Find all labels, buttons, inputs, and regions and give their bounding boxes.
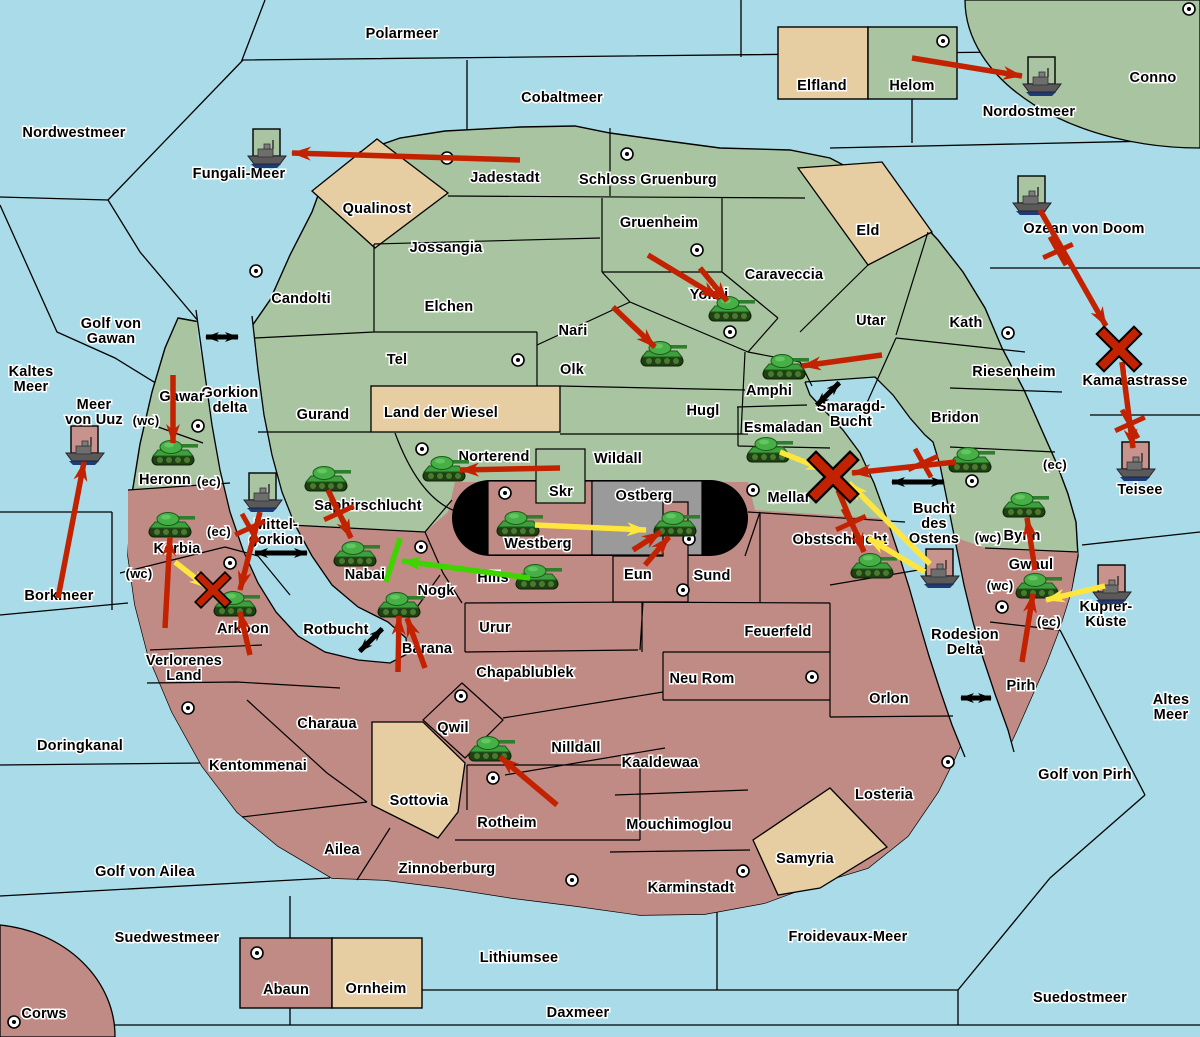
land-label-tel: Tel [387,352,407,368]
sea-label-golf-von-pirh: Golf von Pirh [1038,767,1132,783]
land-label-elchen: Elchen [425,299,474,315]
coast-tag: (wc) [987,578,1014,593]
land-label-elfland: Elfland [797,78,847,94]
land-label-losteria: Losteria [855,787,914,803]
land-label-kaaldewaa: Kaaldewaa [622,755,699,771]
land-label-pirh: Pirh [1007,678,1036,694]
capital-dot [806,671,818,683]
land-label-amphi: Amphi [746,383,792,399]
land-label-zinnoberburg: Zinnoberburg [399,861,496,877]
land-label-orlon: Orlon [869,691,909,707]
sea-label-rotbucht: Rotbucht [303,622,368,638]
capital-dot [251,947,263,959]
sea-label-fungali-meer: Fungali-Meer [193,166,286,182]
land-label-feuerfeld: Feuerfeld [744,624,811,640]
land-label-eun: Eun [624,567,652,583]
land-label-nari: Nari [558,323,587,339]
capital-dot [415,541,427,553]
sea-label-golf-von-ailea: Golf von Ailea [95,864,195,880]
land-label-schloss-gruenburg: Schloss Gruenburg [579,172,717,188]
capital-dot [455,690,467,702]
sea-label-kamalastrasse: Kamalastrasse [1083,373,1188,389]
capital-dot [512,354,524,366]
land-label-conno: Conno [1130,70,1177,86]
capital-dot [724,326,736,338]
game-map-stage: PolarmeerNordwestmeerCobaltmeerFungali-M… [0,0,1200,1037]
land-label-gawar: Gawar [159,389,204,405]
land-label-caraveccia: Caraveccia [745,267,824,283]
land-label-skr: Skr [549,484,573,500]
land-label-karminstadt: Karminstadt [648,880,735,896]
coast-tag: (ec) [197,474,221,489]
map-canvas: PolarmeerNordwestmeerCobaltmeerFungali-M… [0,0,1200,1037]
sea-label-ozean-von-doom: Ozean von Doom [1023,221,1144,237]
sea-label-teisee: Teisee [1117,482,1162,498]
sea-label-polarmeer: Polarmeer [366,26,439,42]
capital-dot [937,35,949,47]
land-label-ailea: Ailea [324,842,360,858]
land-label-gurand: Gurand [297,407,350,423]
land-label-jossangia: Jossangia [410,240,483,256]
land-label-neu-rom: Neu Rom [669,671,734,687]
capital-dot [8,1016,20,1028]
capital-dot [1002,327,1014,339]
sea-label-lithiumsee: Lithiumsee [480,950,559,966]
land-label-jadestadt: Jadestadt [470,170,540,186]
land-label-norterend: Norterend [458,449,529,465]
land-label-charaua: Charaua [297,716,357,732]
red-move-arrow [398,616,399,672]
land-label-bridon: Bridon [931,410,979,426]
land-label-mouchimoglou: Mouchimoglou [626,817,732,833]
coast-tag: (wc) [975,530,1002,545]
land-label-samyria: Samyria [776,851,835,867]
land-label-qwil: Qwil [437,720,468,736]
land-label-esmaladan: Esmaladan [744,420,822,436]
coast-tag: (ec) [207,524,231,539]
capital-dot [677,584,689,596]
capital-dot [487,772,499,784]
land-label-urur: Urur [479,620,511,636]
capital-dot [621,148,633,160]
land-label-chapablublek: Chapablublek [476,665,574,681]
land-label-heronn: Heronn [139,472,191,488]
land-label-sottovia: Sottovia [390,793,450,809]
sea-label-golf-von-gawan: Golf vonGawan [81,316,141,347]
land-label-nilldall: Nilldall [551,740,600,756]
capital-dot [966,475,978,487]
capital-dot [691,244,703,256]
sea-label-doringkanal: Doringkanal [37,738,123,754]
land-label-rotheim: Rotheim [477,815,536,831]
land-label-utar: Utar [856,313,886,329]
land-label-riesenheim: Riesenheim [972,364,1055,380]
coast-tag: (wc) [126,566,153,581]
sea-label-suedostmeer: Suedostmeer [1033,990,1127,1006]
capital-dot [942,756,954,768]
capital-dot [566,874,578,886]
land-label-eld: Eld [856,223,879,239]
land-label-corws: Corws [21,1006,66,1022]
sea-label-kaltes-meer: KaltesMeer [9,364,54,395]
capital-dot [182,702,194,714]
land-label-land-der-wiesel: Land der Wiesel [384,405,498,421]
land-label-barana: Barana [402,641,453,657]
red-move-arrow [460,468,560,470]
land-label-hugl: Hugl [686,403,719,419]
land-label-wildall: Wildall [594,451,642,467]
sea-label-altes-meer: AltesMeer [1153,692,1189,723]
sea-label-nordostmeer: Nordostmeer [983,104,1076,120]
land-label-westberg: Westberg [504,536,571,552]
capital-dot [996,601,1008,613]
land-label-gruenheim: Gruenheim [620,215,698,231]
capital-dot [224,557,236,569]
coast-tag: (ec) [1037,614,1061,629]
capital-dot [250,265,262,277]
sea-label-daxmeer: Daxmeer [547,1005,610,1021]
land-label-ornheim: Ornheim [345,981,406,997]
coast-tag: (ec) [1043,457,1067,472]
capital-dot [416,443,428,455]
sea-label-suedwestmeer: Suedwestmeer [115,930,220,946]
land-label-mellar: Mellar [767,490,810,506]
capital-dot [1183,3,1195,15]
land-label-helom: Helom [889,78,934,94]
land-label-nabai: Nabai [345,567,386,583]
capital-dot [499,487,511,499]
land-label-candolti: Candolti [271,291,331,307]
land-label-kath: Kath [949,315,982,331]
land-label-bynn: Bynn [1003,528,1040,544]
land-label-qualinost: Qualinost [343,201,412,217]
land-label-sund: Sund [693,568,730,584]
land-label-olk: Olk [560,362,585,378]
sea-label-nordwestmeer: Nordwestmeer [22,125,125,141]
sea-label-froidevaux-meer: Froidevaux-Meer [788,929,907,945]
sea-label-cobaltmeer: Cobaltmeer [521,90,603,106]
coast-tag: (wc) [133,413,160,428]
land-label-kentommenai: Kentommenai [209,758,307,774]
land-label-abaun: Abaun [263,982,309,998]
capital-dot [192,420,204,432]
land-label-korbia: Korbia [153,541,201,557]
capital-dot [747,484,759,496]
region-ornheim[interactable] [332,938,422,1008]
capital-dot [737,865,749,877]
land-label-ostberg: Ostberg [616,488,673,504]
